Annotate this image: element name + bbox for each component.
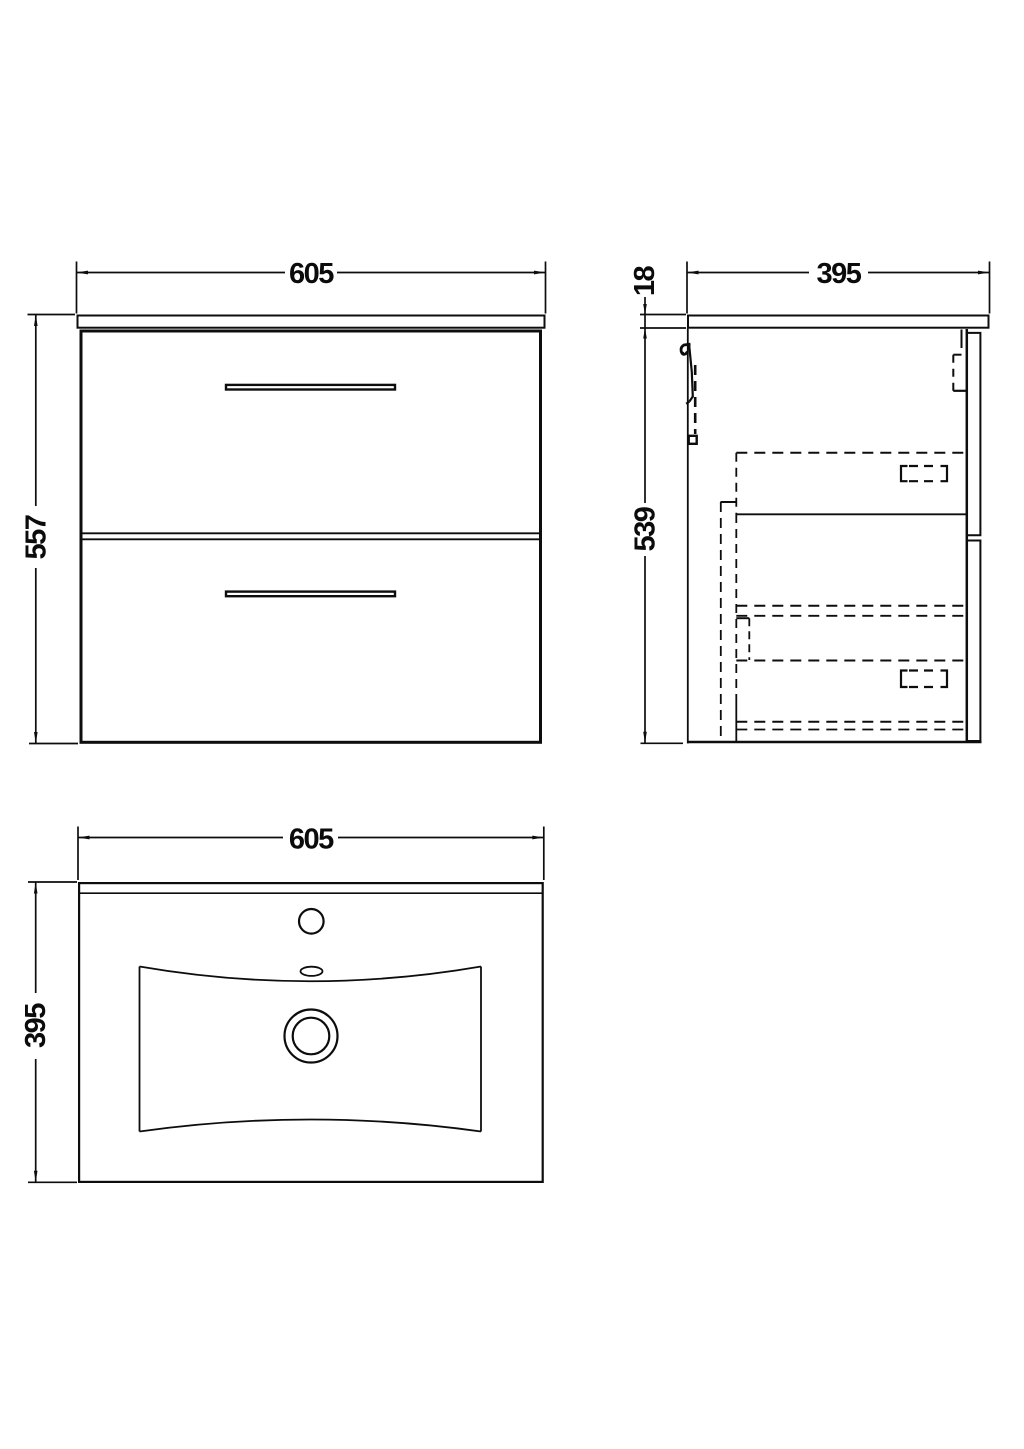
svg-text:557: 557 [21,515,53,559]
svg-text:605: 605 [289,258,334,290]
svg-text:395: 395 [817,258,862,290]
svg-text:539: 539 [630,506,662,551]
svg-text:605: 605 [289,824,334,856]
svg-text:18: 18 [629,266,661,297]
svg-text:395: 395 [20,1003,52,1048]
